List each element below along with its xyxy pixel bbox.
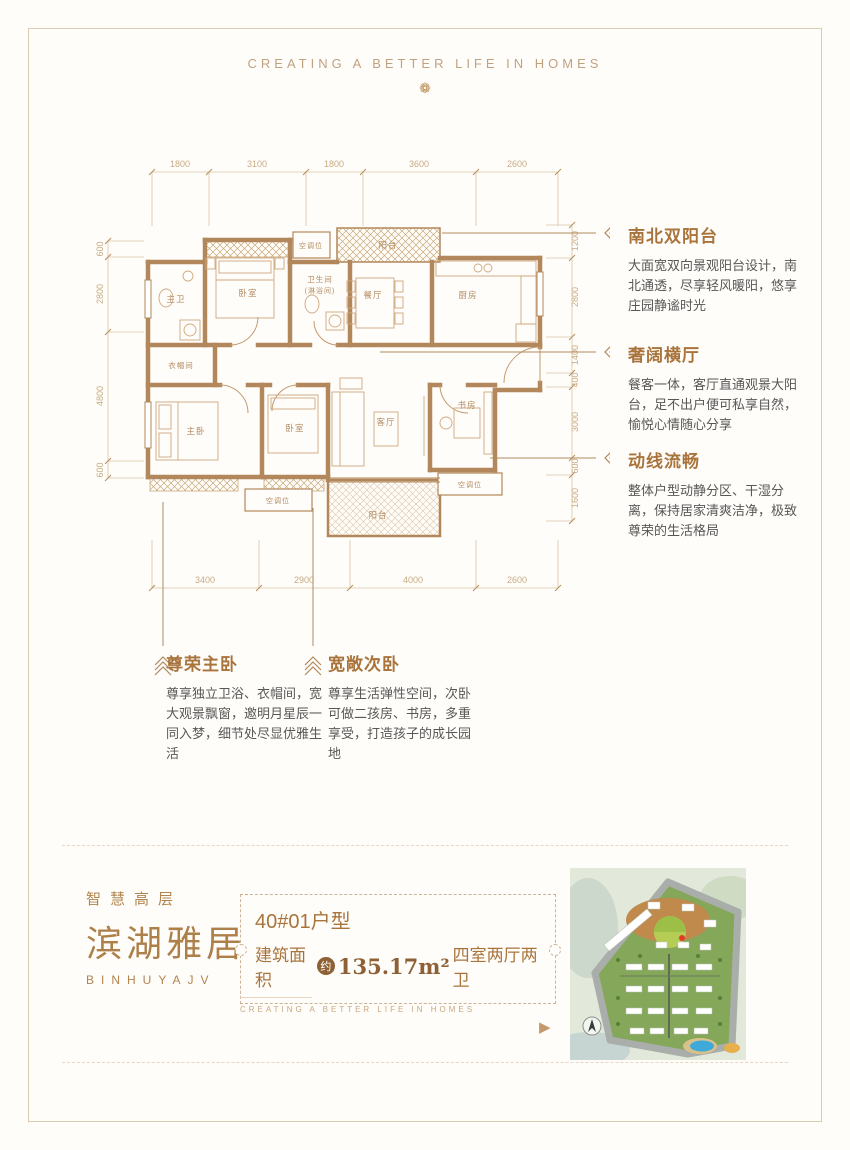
room-label-living: 客厅 bbox=[376, 417, 395, 427]
annotation-title: 动线流畅 bbox=[628, 447, 804, 472]
brand-tagline: 智慧高层 bbox=[86, 888, 246, 909]
room-label-balcony-north: 阳台 bbox=[378, 240, 397, 250]
annotation-smooth-flow: 动线流畅 整体户型动静分区、干湿分离，保持居家清爽洁净，极致尊荣的生活格局 bbox=[628, 447, 804, 541]
unit-info-box: 40#01户型 建筑面积 约 135.17m² 四室两厅两卫 bbox=[240, 894, 556, 1004]
separator-bottom bbox=[62, 1062, 788, 1063]
svg-text:600: 600 bbox=[95, 241, 105, 256]
brand-logo: 智慧高层 滨湖雅居 BINHUYAJV bbox=[86, 888, 246, 987]
annotation-master-bedroom: 尊荣主卧 尊享独立卫浴、衣帽间，宽大观景飘窗，邀明月星辰一同入梦，细节处尽显优雅… bbox=[166, 650, 324, 765]
separator-top bbox=[62, 845, 788, 846]
svg-text:3600: 3600 bbox=[409, 159, 429, 169]
room-label-ac-top: 空调位 bbox=[299, 241, 323, 250]
svg-text:2600: 2600 bbox=[507, 159, 527, 169]
footer-line bbox=[240, 997, 312, 998]
room-label-dining: 餐厅 bbox=[363, 290, 382, 300]
annotation-grand-hall: 奢阔横厅 餐客一体，客厅直通观景大阳台，足不出户便可私享自然，愉悦心情随心分享 bbox=[628, 341, 804, 435]
area-value: 135.17m² bbox=[338, 954, 450, 979]
room-label-master-bedroom: 主卧 bbox=[186, 426, 205, 436]
header-motto: CREATING A BETTER LIFE IN HOMES bbox=[0, 56, 850, 71]
room-label-balcony-south: 阳台 bbox=[368, 510, 387, 520]
annotation-body: 餐客一体，客厅直通观景大阳台，足不出户便可私享自然，愉悦心情随心分享 bbox=[628, 375, 804, 435]
svg-text:400: 400 bbox=[570, 372, 580, 387]
svg-text:1200: 1200 bbox=[570, 231, 580, 251]
map-pointer-arrow-icon: ▶ bbox=[539, 1018, 551, 1036]
svg-text:2800: 2800 bbox=[95, 284, 105, 304]
area-prefix: 建筑面积 bbox=[255, 941, 314, 991]
room-label-kitchen: 厨房 bbox=[458, 290, 477, 300]
svg-text:1400: 1400 bbox=[570, 345, 580, 365]
annotation-north-south-balcony: 南北双阳台 大面宽双向景观阳台设计，南北通透，尽享轻风暖阳，悠享庄园静谧时光 bbox=[628, 222, 804, 316]
svg-text:600: 600 bbox=[95, 462, 105, 477]
annotation-title: 宽敞次卧 bbox=[328, 650, 480, 675]
box-notch bbox=[235, 944, 247, 956]
svg-text:3100: 3100 bbox=[247, 159, 267, 169]
annotation-body: 大面宽双向景观阳台设计，南北通透，尽享轻风暖阳，悠享庄园静谧时光 bbox=[628, 256, 804, 316]
svg-text:4800: 4800 bbox=[95, 386, 105, 406]
unit-title: 40#01户型 bbox=[255, 905, 541, 934]
svg-text:1800: 1800 bbox=[170, 159, 190, 169]
header-ornament-icon: ❁ bbox=[0, 80, 850, 97]
svg-text:2600: 2600 bbox=[507, 575, 527, 585]
site-plan-map bbox=[570, 868, 746, 1060]
south-balcony-area bbox=[328, 480, 440, 536]
pool bbox=[690, 1041, 714, 1052]
unit-area-line: 建筑面积 约 135.17m² 四室两厅两卫 bbox=[255, 941, 541, 991]
footer-motto: CREATING A BETTER LIFE IN HOMES bbox=[240, 1005, 475, 1014]
svg-text:4000: 4000 bbox=[403, 575, 423, 585]
annotation-body: 尊享生活弹性空间，次卧可做二孩房、书房，多重享受，打造孩子的成长园地 bbox=[328, 684, 480, 765]
annotation-title: 南北双阳台 bbox=[628, 222, 804, 247]
annotation-title: 奢阔横厅 bbox=[628, 341, 804, 366]
annotation-body: 尊享独立卫浴、衣帽间，宽大观景飘窗，邀明月星辰一同入梦，细节处尽显优雅生活 bbox=[166, 684, 324, 765]
room-label-master-bath: 主卫 bbox=[166, 294, 185, 304]
room-label-cloakroom: 衣帽间 bbox=[168, 360, 194, 370]
annotation-body: 整体户型动静分区、干湿分离，保持居家清爽洁净，极致尊荣的生活格局 bbox=[628, 481, 804, 541]
location-marker bbox=[679, 935, 685, 941]
svg-text:3000: 3000 bbox=[570, 412, 580, 432]
brand-name-en: BINHUYAJV bbox=[86, 973, 246, 987]
room-label-bathroom: 卫生间 bbox=[307, 274, 333, 284]
bedroom-bay-window bbox=[206, 241, 290, 257]
leader-chevron-icon bbox=[605, 450, 610, 466]
brand-name: 滨湖雅居 bbox=[86, 915, 246, 967]
compass-icon bbox=[583, 1017, 601, 1035]
annotation-title: 尊荣主卧 bbox=[166, 650, 324, 675]
floor-plan: 1800 3100 1800 3600 2600 3400 2900 4000 … bbox=[80, 140, 610, 680]
svg-text:2900: 2900 bbox=[294, 575, 314, 585]
room-label-bathroom-note: (淋浴间) bbox=[305, 286, 336, 295]
annotation-second-bedroom: 宽敞次卧 尊享生活弹性空间，次卧可做二孩房、书房，多重享受，打造孩子的成长园地 bbox=[328, 650, 480, 765]
leader-chevron-icon bbox=[605, 225, 610, 241]
svg-text:1800: 1800 bbox=[324, 159, 344, 169]
svg-text:1600: 1600 bbox=[570, 488, 580, 508]
room-label-bedroom-top: 卧室 bbox=[238, 288, 257, 298]
svg-text:3400: 3400 bbox=[195, 575, 215, 585]
room-label-bedroom-bottom: 卧室 bbox=[285, 423, 304, 433]
unit-layout: 四室两厅两卫 bbox=[453, 941, 541, 991]
svg-text:2800: 2800 bbox=[570, 287, 580, 307]
box-notch bbox=[549, 944, 561, 956]
room-label-ac-bottom-left: 空调位 bbox=[266, 496, 290, 505]
room-label-ac-bottom-right: 空调位 bbox=[458, 480, 482, 489]
approx-badge-icon: 约 bbox=[317, 957, 335, 975]
svg-text:600: 600 bbox=[570, 458, 580, 473]
room-label-study: 书房 bbox=[457, 400, 476, 410]
leader-chevron-icon bbox=[605, 344, 610, 360]
